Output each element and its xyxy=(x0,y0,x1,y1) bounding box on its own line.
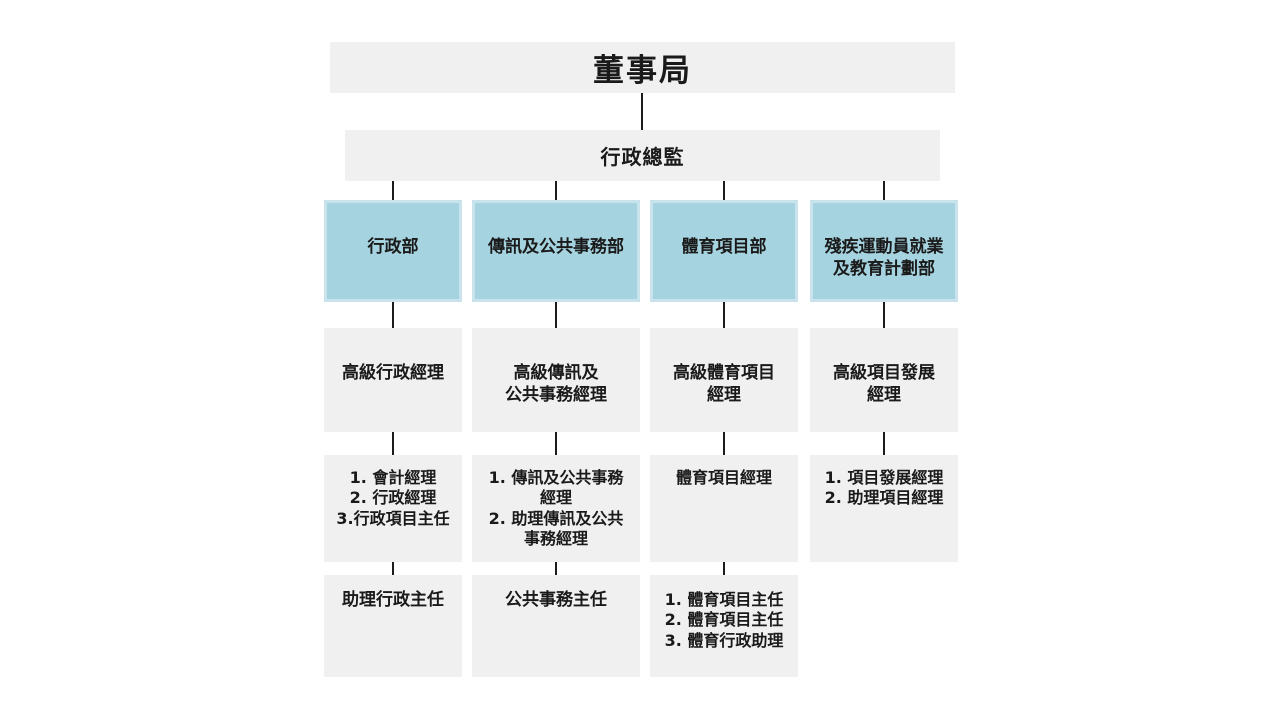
senior-manager-box: 高級行政經理 xyxy=(324,328,462,432)
managers-box: 1. 項目發展經理 2. 助理項目經理 xyxy=(810,455,958,562)
managers-box: 1. 會計經理 2. 行政經理 3.行政項目主任 xyxy=(324,455,462,562)
senior-manager-label: 高級體育項目 經理 xyxy=(673,363,775,404)
connector-line xyxy=(723,181,725,200)
senior-manager-label: 高級項目發展 經理 xyxy=(833,363,935,404)
connector-line xyxy=(641,93,643,130)
connector-line xyxy=(883,181,885,200)
senior-manager-box: 高級項目發展 經理 xyxy=(810,328,958,432)
manager-item: 1. 項目發展經理 xyxy=(810,468,958,488)
senior-manager-label: 高級行政經理 xyxy=(342,363,444,383)
dept-label: 體育項目部 xyxy=(682,237,767,257)
officer-item: 1. 體育項目主任 xyxy=(650,590,798,610)
manager-item: 3.行政項目主任 xyxy=(324,509,462,529)
connector-line xyxy=(392,562,394,575)
dept-label: 傳訊及公共事務部 xyxy=(488,237,624,257)
ceo-label: 行政總監 xyxy=(601,141,685,170)
officer-item: 3. 體育行政助理 xyxy=(650,631,798,651)
senior-manager-box: 高級體育項目 經理 xyxy=(650,328,798,432)
connector-line xyxy=(555,432,557,455)
board-box: 董事局 xyxy=(330,42,955,93)
connector-line xyxy=(723,562,725,575)
board-label: 董事局 xyxy=(593,45,692,90)
manager-item: 2. 助理傳訊及公共 事務經理 xyxy=(472,509,640,550)
managers-box: 體育項目經理 xyxy=(650,455,798,562)
officer-item: 助理行政主任 xyxy=(324,590,462,612)
officer-item: 2. 體育項目主任 xyxy=(650,610,798,630)
dept-box-administration: 行政部 xyxy=(324,200,462,302)
dept-label: 殘疾運動員就業 及教育計劃部 xyxy=(825,237,944,278)
manager-item: 體育項目經理 xyxy=(650,468,798,488)
connector-line xyxy=(555,562,557,575)
officer-item: 公共事務主任 xyxy=(472,590,640,612)
officers-box: 公共事務主任 xyxy=(472,575,640,677)
officers-box: 助理行政主任 xyxy=(324,575,462,677)
connector-line xyxy=(392,432,394,455)
senior-manager-label: 高級傳訊及 公共事務經理 xyxy=(505,363,607,404)
org-chart: 董事局 行政總監 行政部 高級行政經理 1. 會計經理 2. 行政經理 3.行政… xyxy=(0,0,1280,720)
manager-item: 2. 行政經理 xyxy=(324,488,462,508)
connector-line xyxy=(392,181,394,200)
manager-item: 1. 會計經理 xyxy=(324,468,462,488)
connector-line xyxy=(723,432,725,455)
connector-line xyxy=(555,181,557,200)
connector-line xyxy=(883,432,885,455)
dept-box-sports: 體育項目部 xyxy=(650,200,798,302)
officers-box: 1. 體育項目主任 2. 體育項目主任 3. 體育行政助理 xyxy=(650,575,798,677)
connector-line xyxy=(883,302,885,328)
manager-item: 1. 傳訊及公共事務 經理 xyxy=(472,468,640,509)
senior-manager-box: 高級傳訊及 公共事務經理 xyxy=(472,328,640,432)
connector-line xyxy=(392,302,394,328)
manager-item: 2. 助理項目經理 xyxy=(810,488,958,508)
dept-box-communications: 傳訊及公共事務部 xyxy=(472,200,640,302)
ceo-box: 行政總監 xyxy=(345,130,940,181)
dept-label: 行政部 xyxy=(368,237,419,257)
managers-box: 1. 傳訊及公共事務 經理 2. 助理傳訊及公共 事務經理 xyxy=(472,455,640,562)
dept-box-athlete-employment-education: 殘疾運動員就業 及教育計劃部 xyxy=(810,200,958,302)
connector-line xyxy=(723,302,725,328)
connector-line xyxy=(555,302,557,328)
